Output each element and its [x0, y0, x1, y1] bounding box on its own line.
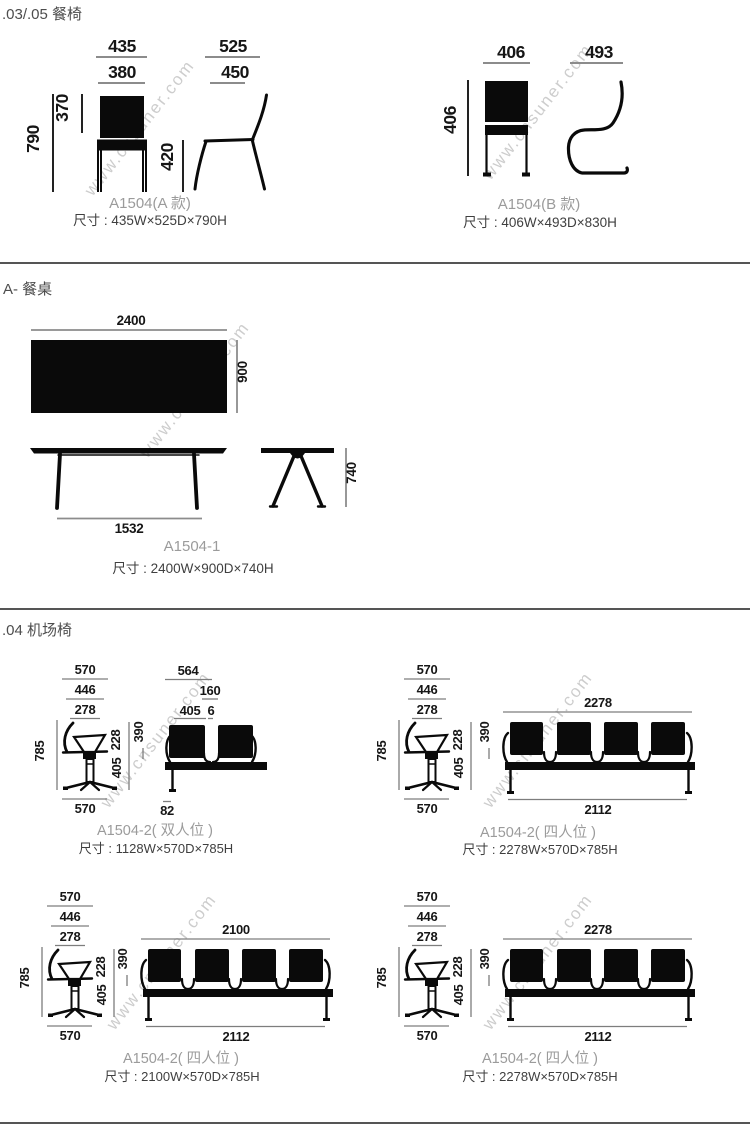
dim-bench-seat-height: 390: [115, 949, 130, 970]
dim-chair-a-inner-width: 380: [108, 62, 136, 82]
spec-sheet-page: www.cnsuner.com www.cnsuner.com www.cnsu…: [0, 0, 750, 1128]
dim-side-bottom: 570: [417, 801, 438, 816]
table-leg: [301, 456, 322, 506]
base-foot: [97, 1014, 102, 1018]
bench-seat: [604, 722, 638, 755]
dim-side-w3: 278: [75, 702, 96, 717]
bench-end-arm: [503, 733, 508, 762]
bench-seat: [510, 722, 543, 755]
bench-end-arm: [325, 960, 330, 989]
dim-side-back: 228: [108, 730, 123, 751]
bench-end-arm: [141, 960, 146, 989]
bench-end-arm: [687, 733, 692, 762]
bench-foot: [507, 1018, 514, 1021]
dim-side-back: 228: [93, 957, 108, 978]
dim-side-bottom: 570: [60, 1028, 81, 1043]
pedestal-column: [429, 986, 436, 1009]
dim-side-under: 405: [94, 985, 109, 1006]
dim-table-width: 2400: [117, 313, 146, 328]
table-front-view: 1532: [25, 440, 245, 545]
dim-side-height: 785: [17, 968, 32, 989]
bench-mid-support: [276, 979, 288, 989]
dim-chair-a-seat-height: 420: [157, 142, 177, 170]
bench-4seat-front-view: 2278 390 2112: [472, 655, 702, 820]
bench-beam: [143, 989, 333, 997]
bench-beam: [505, 989, 695, 997]
dim-side-bottom: 570: [75, 801, 96, 816]
chair-a-front-view: [97, 96, 147, 192]
bench-4seat-front-view: 2278 390 2112: [472, 882, 702, 1047]
product-size-bench-4seat: 尺寸 : 2278W×570D×785H: [462, 839, 617, 858]
table-leg: [273, 456, 294, 506]
tabletop: [31, 340, 227, 413]
chair-rear-leg: [195, 142, 206, 190]
chair-backrest: [100, 96, 144, 138]
base-foot: [454, 787, 459, 791]
bench-foot: [685, 1018, 692, 1021]
bench-beam: [505, 762, 695, 770]
chair-seat: [485, 125, 528, 135]
dim-side-w2: 446: [417, 682, 438, 697]
dim-bench-seat-height: 390: [477, 722, 492, 743]
dim-bench-pitch: 564: [178, 663, 200, 678]
chair-seat-shell: [59, 962, 90, 979]
bench-foot: [323, 1018, 330, 1021]
product-name-bench-4seat: A1504-2( 四人位 ): [123, 1047, 239, 1068]
pedestal-column: [87, 759, 94, 782]
bench-seat: [195, 949, 229, 982]
chair-seat-profile: [205, 140, 253, 142]
chair-foot: [483, 173, 491, 177]
base-foot: [112, 787, 117, 791]
dim-chair-a-depth-inner: 450: [221, 62, 249, 82]
dim-bench-width: 2100: [222, 922, 250, 937]
bench-seat: [242, 949, 276, 982]
dim-bench-leg-span: 2112: [584, 802, 611, 817]
bench-beam: [165, 762, 267, 770]
table-top-view: 2400 900: [25, 300, 265, 425]
dim-side-height: 785: [374, 968, 389, 989]
chair-a-side-view: [195, 95, 267, 189]
chair-a-drawing: 435 380 790 370 420 525 450: [25, 25, 325, 197]
bench-mid-support: [591, 752, 603, 762]
bench-mid-support: [204, 753, 219, 762]
dim-side-back: 228: [450, 957, 465, 978]
dim-side-w2: 446: [75, 682, 96, 697]
base-foot: [63, 787, 68, 791]
chair-foot: [522, 173, 530, 177]
base-foot: [454, 1014, 459, 1018]
dim-side-w2: 446: [60, 909, 81, 924]
bench-seat: [557, 949, 591, 982]
table-leg: [57, 454, 60, 508]
bench-2seat-front-view: 564 160 405 6 390 82: [132, 655, 282, 820]
dim-table-leg-span: 1532: [115, 521, 144, 536]
tabletop-edge: [261, 448, 334, 453]
dim-chair-a-total-height: 790: [23, 124, 43, 152]
bench-foot: [169, 789, 176, 792]
dim-chair-b-depth: 493: [585, 42, 613, 62]
bench-seat: [169, 725, 205, 758]
dim-side-w1: 570: [75, 662, 96, 677]
bench-4seat-front-view: 2100 390 2112: [110, 882, 340, 1047]
dim-side-under: 405: [451, 985, 466, 1006]
base-foot: [405, 787, 410, 791]
dim-chair-a-depth-outer: 525: [219, 36, 247, 56]
bottom-divider: [0, 1122, 750, 1124]
product-size-bench-2seat: 尺寸 : 1128W×570D×785H: [79, 838, 233, 857]
base-foot: [48, 1014, 53, 1018]
bench-seat: [218, 725, 253, 758]
dim-chair-a-back-height: 370: [52, 93, 72, 121]
dim-bench-seat-width: 405: [180, 703, 201, 718]
dim-side-back: 228: [450, 730, 465, 751]
pedestal-column: [72, 986, 79, 1009]
dim-bench-foot-offset: 82: [160, 803, 174, 818]
bench-end-arm: [503, 960, 508, 989]
chair-backrest: [485, 81, 528, 122]
bench-mid-support: [638, 979, 650, 989]
dim-chair-a-outer-width: 435: [108, 36, 136, 56]
section-divider: [0, 262, 750, 264]
product-name-bench-2seat: A1504-2( 双人位 ): [97, 819, 213, 840]
dim-side-height: 785: [32, 741, 47, 762]
chair-b-drawing: 406 406 493: [440, 25, 680, 197]
chair-front-leg: [253, 141, 265, 189]
bench-mid-support: [638, 752, 650, 762]
dim-side-w1: 570: [60, 889, 81, 904]
dim-bench-width: 2278: [584, 922, 612, 937]
product-size-bench-4seat: 尺寸 : 2278W×570D×785H: [462, 1066, 617, 1085]
dim-side-under: 405: [109, 758, 124, 779]
product-size-bench-4seat: 尺寸 : 2100W×570D×785H: [104, 1066, 259, 1085]
bench-mid-support: [182, 979, 194, 989]
dim-bench-leg-span: 2112: [222, 1029, 249, 1044]
product-size-table: 尺寸 : 2400W×900D×740H: [112, 557, 273, 577]
chair-b-front-view: [483, 81, 530, 177]
chair-seat-shell: [416, 735, 447, 752]
bench-end-arm: [687, 960, 692, 989]
dim-chair-b-width: 406: [497, 42, 525, 62]
dim-side-under: 405: [451, 758, 466, 779]
pedestal-column: [429, 759, 436, 782]
dim-side-bottom: 570: [417, 1028, 438, 1043]
table-side-view: 740: [250, 440, 375, 545]
bench-figure: [141, 949, 333, 1021]
dim-bench-seat-height: 390: [131, 722, 146, 743]
bench-figure: [503, 722, 695, 794]
chair-backrest: [407, 950, 415, 979]
dim-side-w1: 570: [417, 662, 438, 677]
section-title-dining-table: A- 餐桌: [3, 278, 52, 299]
dim-side-w3: 278: [60, 929, 81, 944]
dim-bench-t2: 160: [200, 683, 221, 698]
chair-back-profile: [253, 95, 267, 140]
bench-seat: [148, 949, 181, 982]
section-title-dining-chairs: .03/.05 餐椅: [2, 3, 82, 24]
dim-side-height: 785: [374, 741, 389, 762]
chair-seat: [97, 140, 147, 151]
chair-backrest: [65, 723, 73, 752]
chair-backrest: [50, 950, 58, 979]
dim-side-w2: 446: [417, 909, 438, 924]
chair-backrest: [407, 723, 415, 752]
bench-seat: [289, 949, 323, 982]
chair-seat-shell: [74, 735, 105, 752]
bench-seat: [651, 722, 685, 755]
dim-side-w3: 278: [417, 929, 438, 944]
bench-foot: [507, 791, 514, 794]
dim-table-depth: 900: [235, 361, 250, 383]
bench-mid-support: [544, 979, 556, 989]
bench-figure: [503, 949, 695, 1021]
dim-bench-seat-height: 390: [477, 949, 492, 970]
section-divider: [0, 608, 750, 610]
chair-b-side-view: [568, 82, 627, 173]
dim-bench-leg-span: 2112: [584, 1029, 611, 1044]
section-title-airport-chairs: .04 机场椅: [2, 619, 72, 640]
bench-figure: [165, 725, 267, 792]
bench-foot: [685, 791, 692, 794]
bench-seat: [651, 949, 685, 982]
bench-mid-support: [229, 979, 241, 989]
dim-bench-gap: 6: [208, 703, 215, 718]
bench-foot: [145, 1018, 152, 1021]
bench-seat: [557, 722, 591, 755]
product-name-table: A1504-1: [164, 538, 221, 555]
chair-seat-shell: [416, 962, 447, 979]
bench-seat: [510, 949, 543, 982]
bench-mid-support: [544, 752, 556, 762]
product-size-chair-b: 尺寸 : 406W×493D×830H: [463, 211, 617, 231]
dim-table-height: 740: [344, 462, 359, 484]
dim-chair-b-height: 406: [440, 105, 460, 133]
product-name-bench-4seat: A1504-2( 四人位 ): [482, 1047, 598, 1068]
table-leg: [194, 454, 197, 508]
dim-bench-width: 2278: [584, 695, 612, 710]
dim-side-w3: 278: [417, 702, 438, 717]
bench-mid-support: [591, 979, 603, 989]
product-size-chair-a: 尺寸 : 435W×525D×790H: [73, 209, 227, 229]
base-foot: [405, 1014, 410, 1018]
dim-side-w1: 570: [417, 889, 438, 904]
bench-seat: [604, 949, 638, 982]
